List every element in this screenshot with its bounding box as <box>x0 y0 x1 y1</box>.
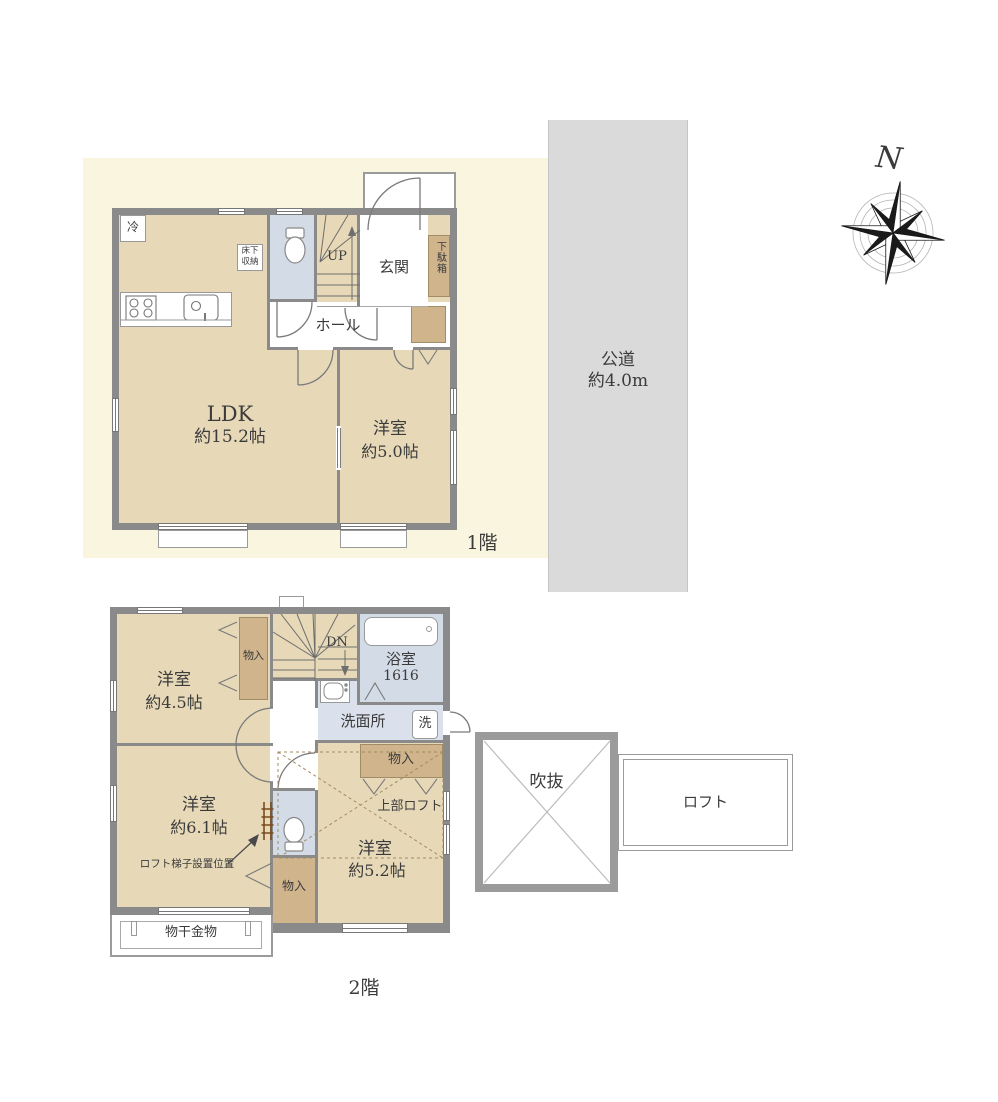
terrace-step-bedroom <box>340 530 407 548</box>
doorway-2f-bedroom52 <box>315 753 318 790</box>
loft-box-inner <box>623 759 788 846</box>
washbasin-2f <box>320 679 350 703</box>
closet-2f-mid <box>360 744 443 778</box>
floor1-hall-area <box>270 302 407 350</box>
balcony-post-left <box>131 921 137 936</box>
stairs-bottom-line <box>317 306 360 307</box>
kitchen-counter <box>120 292 232 327</box>
closet-2f-top <box>239 617 268 700</box>
window-2f-right-1 <box>443 791 450 821</box>
window-1f-bottom-bedroom <box>340 523 407 530</box>
window-1f-top <box>218 208 245 215</box>
window-2f-left-1 <box>110 680 117 712</box>
hall-2f <box>273 681 315 791</box>
void-box <box>475 732 618 892</box>
window-2f-bottom-right <box>342 923 408 933</box>
washing-machine-box <box>412 710 438 739</box>
window-2f-left-2 <box>110 785 117 822</box>
wall-2f-stairs-bottom <box>273 678 360 681</box>
wall-1f-toilet-bottom <box>270 299 317 302</box>
loft-box <box>618 754 793 851</box>
bathtub-2f <box>364 617 438 646</box>
refrigerator-box <box>120 215 146 242</box>
laundry-hardware-box <box>120 921 262 949</box>
doorway-2f-washroom-ext <box>443 711 450 735</box>
balcony-post-right <box>245 921 251 936</box>
doorway-1f-hall-bedroom <box>393 347 413 350</box>
wall-2f-bath-washroom <box>360 702 443 705</box>
wall-2f-washroom-bottom <box>315 740 443 743</box>
doorway-1f-sliding <box>336 426 341 470</box>
entrance-step-line <box>360 306 428 307</box>
wall-2f-toilet-top <box>273 788 315 791</box>
doorway-2f-washroom <box>315 708 318 740</box>
window-1f-right-1 <box>450 388 457 415</box>
wall-1f-stairs-entrance <box>357 215 360 307</box>
window-1f-bottom-ldk <box>158 523 248 530</box>
window-2f-top <box>137 607 183 614</box>
window-1f-right-2 <box>450 430 457 485</box>
wall-2f-45-61 <box>117 743 273 746</box>
floor1-entrance-room <box>360 215 428 307</box>
closet-2f-bottom <box>273 858 315 923</box>
toilet-2f <box>273 791 315 858</box>
floor1-shoe-cabinet-box <box>428 235 450 297</box>
wall-1f-ldk-right <box>267 215 270 350</box>
window-1f-toilet <box>276 208 303 215</box>
wall-1f-hall-bottom <box>267 347 450 350</box>
doorway-1f-hall-ldk <box>298 347 333 350</box>
floor1-toilet-room <box>270 215 317 302</box>
floor-plan-canvas: 公道 約4.0m <box>0 0 998 1102</box>
wall-1f-toilet-stairs <box>314 215 317 302</box>
wall-2f-toilet-bottom <box>273 855 315 858</box>
terrace-step-ldk <box>158 530 248 548</box>
public-road <box>548 120 688 592</box>
window-2f-right-2 <box>443 824 450 855</box>
wall-2f-stairs-bath <box>357 614 360 705</box>
floor-storage-box <box>237 244 263 271</box>
floor1-hall-closet <box>411 306 446 343</box>
window-2f-bottom-left <box>158 907 250 915</box>
window-1f-left <box>112 398 119 432</box>
floor2-label: 2階 <box>334 977 394 1001</box>
compass-rose <box>836 138 951 298</box>
compass: N <box>836 138 951 298</box>
